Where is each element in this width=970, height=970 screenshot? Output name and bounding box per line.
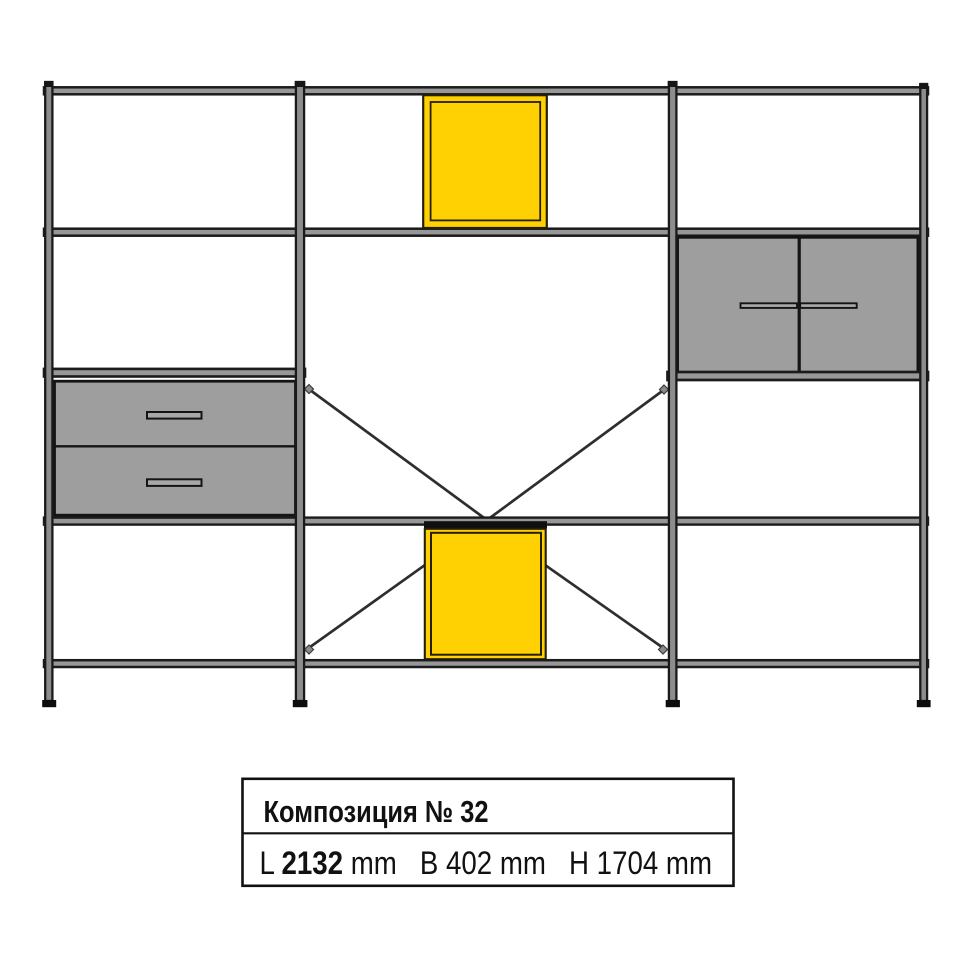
svg-text:Композиция № 32: Композиция № 32 bbox=[264, 795, 489, 829]
svg-text:L 2132 mm B 402 mm H 1704: L 2132 mm B 402 mm H 1704 mm bbox=[260, 845, 713, 881]
